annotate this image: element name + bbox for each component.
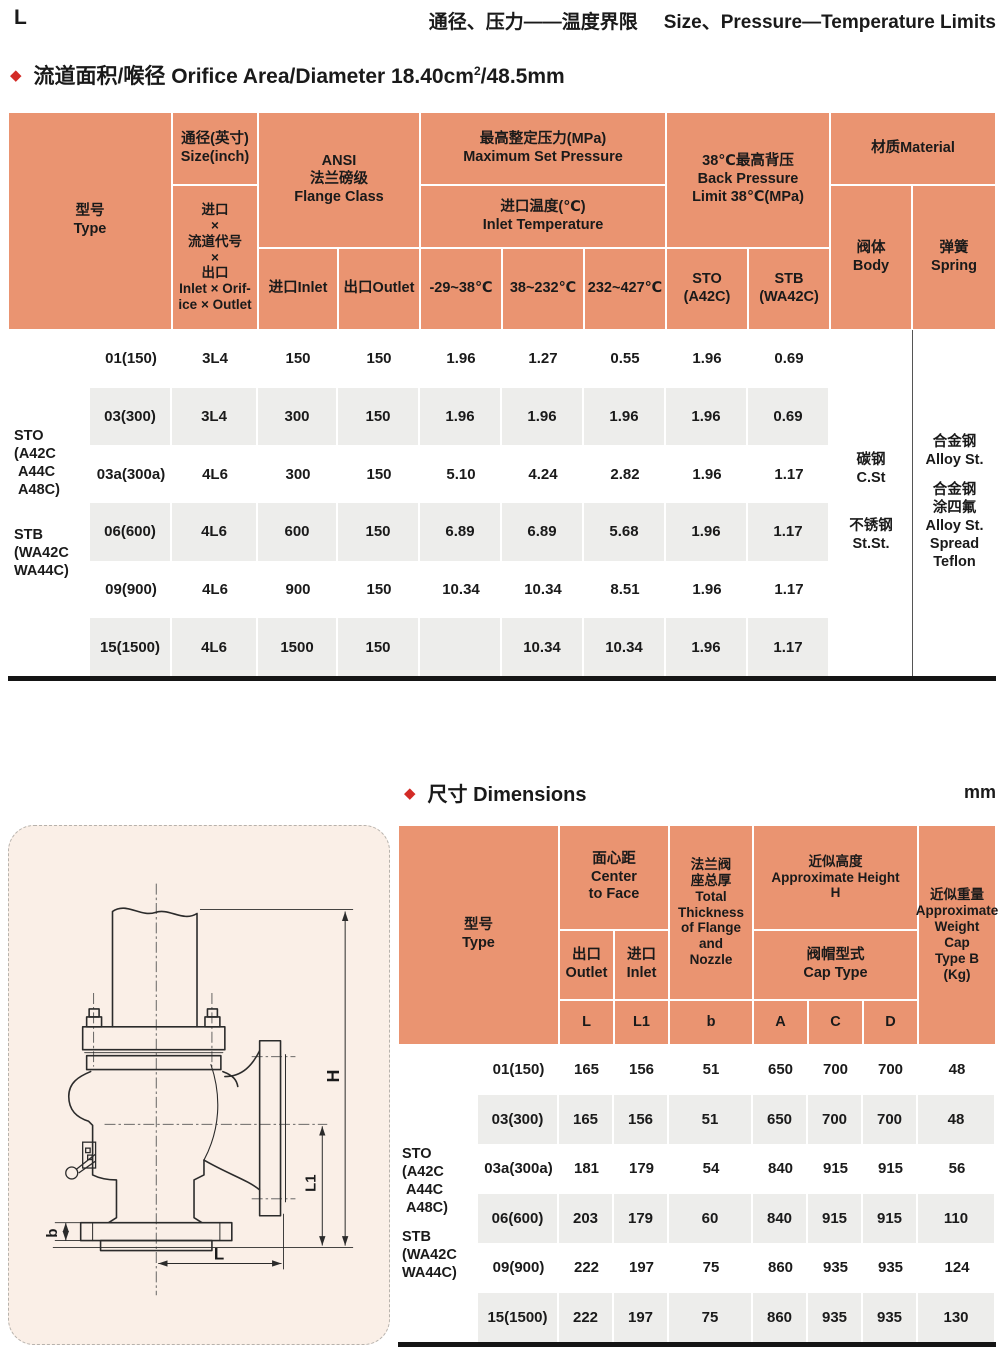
pt-cell: 150: [338, 618, 420, 676]
dim-cell: 935: [863, 1293, 918, 1343]
dim-cell: 700: [863, 1095, 918, 1145]
pt-cell: 150: [338, 561, 420, 619]
dim-cell: 75: [669, 1243, 753, 1293]
pt-table-body: STO (A42C A44C A48C) STB (WA42C WA44C) 碳…: [8, 330, 996, 676]
page-corner-letter: L: [14, 6, 27, 30]
dim-cell: 840: [753, 1144, 808, 1194]
dim-table-bottom-rule: [398, 1342, 996, 1347]
dimension-lines: [53, 910, 353, 1270]
dim-cell: 181: [559, 1144, 614, 1194]
dim-header-approx-height: 近似高度 Approximate Height H: [753, 825, 918, 930]
dim-cell: 156: [614, 1095, 669, 1145]
dim-cell: 860: [753, 1293, 808, 1343]
dim-label-b: b: [45, 1229, 61, 1238]
pt-table-bottom-rule: [8, 676, 996, 681]
dim-cell: 51: [669, 1045, 753, 1095]
dim-header-cap-type: 阀帽型式 Cap Type: [753, 930, 918, 1000]
dim-cell: 51: [669, 1095, 753, 1145]
dim-cell: 197: [614, 1293, 669, 1343]
pt-header-size: 通径(英寸) Size(inch): [172, 112, 258, 185]
pt-header-temp2: 38~232℃: [502, 248, 584, 330]
pt-cell: 03a(300a): [90, 445, 172, 503]
pt-material-stainless: 不锈钢 St.St.: [849, 518, 893, 554]
pt-cell: 1.96: [502, 388, 584, 446]
pt-cell: 0.69: [748, 388, 830, 446]
pt-cell: 4L6: [172, 561, 258, 619]
dims-title: ◆ 尺寸 Dimensions mm: [404, 778, 996, 807]
pt-cell: 0.69: [748, 330, 830, 388]
dim-cell: 915: [863, 1194, 918, 1244]
pt-header-stb: STB (WA42C): [748, 248, 830, 330]
dim-cell: 48: [918, 1045, 996, 1095]
pt-cell: 3L4: [172, 330, 258, 388]
diamond-bullet-icon: ◆: [10, 66, 22, 84]
dim-cell: 130: [918, 1293, 996, 1343]
lever-assembly: [66, 1142, 96, 1179]
pt-table-header: 型号 Type 通径(英寸) Size(inch) 进口 × 流道代号 × 出口…: [8, 112, 996, 330]
dim-letter-A: A: [753, 1000, 808, 1045]
dim-header-center-to-face: 面心距 Center to Face: [559, 825, 669, 930]
dim-cell: 915: [808, 1194, 863, 1244]
dim-cell: 203: [559, 1194, 614, 1244]
pt-cell: 150: [338, 445, 420, 503]
pt-cell: 1.96: [666, 388, 748, 446]
pt-cell: 1.96: [420, 330, 502, 388]
dimension-labels: H L1 b L: [45, 1070, 343, 1264]
dim-cell: 124: [918, 1243, 996, 1293]
dim-letter-L1: L1: [614, 1000, 669, 1045]
dim-cell: 700: [808, 1095, 863, 1145]
dim-header-type: 型号 Type: [398, 825, 559, 1045]
dim-cell: 60: [669, 1194, 753, 1244]
pt-header-inlet-temperature: 进口温度(℃) Inlet Temperature: [420, 185, 666, 248]
pt-cell: 1.17: [748, 561, 830, 619]
page-title-en: Size、Pressure—Temperature Limits: [664, 12, 996, 33]
dim-cell: 01(150): [478, 1045, 559, 1095]
pt-header-inlet-orifice-outlet: 进口 × 流道代号 × 出口 Inlet × Orif- ice × Outle…: [172, 185, 258, 330]
orifice-text: 流道面积/喉径 Orifice Area/Diameter 18.40cm2/4…: [34, 60, 565, 90]
pt-cell: 03(300): [90, 388, 172, 446]
dim-letter-L: L: [559, 1000, 614, 1045]
pt-cell: 4L6: [172, 445, 258, 503]
pt-cell: 1.17: [748, 503, 830, 561]
dim-cell: 179: [614, 1194, 669, 1244]
catalog-page: L 通径、压力——温度界限Size、Pressure—Temperature L…: [0, 0, 1000, 1357]
pt-cell: 0.55: [584, 330, 666, 388]
pt-cell: 1.17: [748, 618, 830, 676]
pt-header-inlet: 进口Inlet: [258, 248, 338, 330]
dim-cell: 860: [753, 1243, 808, 1293]
dim-cell: 700: [863, 1045, 918, 1095]
pt-material-carbon: 碳钢 C.St: [857, 452, 886, 488]
pt-cell: 150: [258, 330, 338, 388]
pt-cell: 6.89: [502, 503, 584, 561]
dim-header-thickness: 法兰阀 座总厚 Total Thickness of Flange and No…: [669, 825, 753, 1000]
pt-cell: 06(600): [90, 503, 172, 561]
pt-group-sto: STO (A42C A44C A48C): [14, 427, 90, 500]
dim-cell: 915: [808, 1144, 863, 1194]
dim-group-sto: STO (A42C A44C A48C): [402, 1145, 478, 1218]
dim-label-L: L: [214, 1244, 224, 1263]
pt-cell: 10.34: [420, 561, 502, 619]
pt-group-labels: STO (A42C A44C A48C) STB (WA42C WA44C): [8, 330, 90, 676]
dims-unit: mm: [964, 782, 996, 803]
dim-table-header: 型号 Type 面心距 Center to Face 出口 Outlet 进口 …: [398, 825, 996, 1045]
pt-cell: 3L4: [172, 388, 258, 446]
dim-table-body: STO (A42C A44C A48C) STB (WA42C WA44C) 0…: [398, 1045, 996, 1342]
pt-header-ansi: ANSI 法兰磅级 Flange Class: [258, 112, 420, 248]
dim-label-H: H: [323, 1070, 343, 1083]
pt-cell: 1.17: [748, 445, 830, 503]
pt-header-outlet: 出口Outlet: [338, 248, 420, 330]
dim-cell: 650: [753, 1045, 808, 1095]
pt-cell: 6.89: [420, 503, 502, 561]
pt-cell: 15(1500): [90, 618, 172, 676]
pt-cell: 150: [338, 330, 420, 388]
dim-group-labels: STO (A42C A44C A48C) STB (WA42C WA44C): [398, 1045, 478, 1342]
pt-cell: 10.34: [502, 561, 584, 619]
dim-cell: 179: [614, 1144, 669, 1194]
dims-title-text: 尺寸 Dimensions: [428, 778, 587, 807]
pt-cell: 1.96: [666, 445, 748, 503]
pt-spring-alloy: 合金钢 Alloy St.: [925, 434, 983, 470]
dim-cell: 03a(300a): [478, 1144, 559, 1194]
pt-cell: 1.96: [420, 388, 502, 446]
dim-cell: 700: [808, 1045, 863, 1095]
dim-label-L1: L1: [303, 1174, 319, 1191]
valve-drawing: H L1 b L: [9, 826, 389, 1343]
dim-cell: 935: [808, 1243, 863, 1293]
pt-cell: 5.68: [584, 503, 666, 561]
dim-cell: 222: [559, 1293, 614, 1343]
pt-cell: 150: [338, 503, 420, 561]
pt-cell: 1.96: [666, 330, 748, 388]
pt-cell: 4.24: [502, 445, 584, 503]
pt-spring-material: 合金钢 Alloy St. 合金钢 涂四氟 Alloy St. Spread T…: [912, 330, 996, 676]
page-title: 通径、压力——温度界限Size、Pressure—Temperature Lim…: [429, 7, 996, 34]
orifice-superscript: 2: [474, 64, 481, 78]
pt-cell: 5.10: [420, 445, 502, 503]
pt-cell: 01(150): [90, 330, 172, 388]
dim-letter-b: b: [669, 1000, 753, 1045]
dim-cell: 840: [753, 1194, 808, 1244]
pt-cell: 8.51: [584, 561, 666, 619]
dim-cell: 75: [669, 1293, 753, 1343]
pt-header-back-pressure: 38℃最高背压 Back Pressure Limit 38℃(MPa): [666, 112, 830, 248]
pt-header-temp3: 232~427℃: [584, 248, 666, 330]
orifice-line: ◆ 流道面积/喉径 Orifice Area/Diameter 18.40cm2…: [10, 60, 565, 90]
pt-group-stb: STB (WA42C WA44C): [14, 526, 90, 580]
dim-header-inlet: 进口 Inlet: [614, 930, 669, 1000]
pt-cell: [420, 618, 502, 676]
dim-cell: 650: [753, 1095, 808, 1145]
dim-header-outlet: 出口 Outlet: [559, 930, 614, 1000]
pt-cell: 300: [258, 445, 338, 503]
dim-cell: 09(900): [478, 1243, 559, 1293]
pt-cell: 1.27: [502, 330, 584, 388]
pt-cell: 2.82: [584, 445, 666, 503]
dim-cell: 935: [808, 1293, 863, 1343]
pt-cell: 4L6: [172, 503, 258, 561]
pt-cell: 1.96: [666, 561, 748, 619]
dim-header-weight: 近似重量 Approximate Weight Cap Type B (Kg): [918, 825, 996, 1045]
pt-header-spring: 弹簧 Spring: [912, 185, 996, 330]
valve-drawing-panel: H L1 b L: [8, 825, 390, 1345]
pt-body-material: 碳钢 C.St 不锈钢 St.St.: [830, 330, 912, 676]
pt-header-body: 阀体 Body: [830, 185, 912, 330]
pt-cell: 900: [258, 561, 338, 619]
pt-cell: 1.96: [666, 618, 748, 676]
dim-letter-C: C: [808, 1000, 863, 1045]
dim-cell: 110: [918, 1194, 996, 1244]
pt-header-temp1: -29~38℃: [420, 248, 502, 330]
pt-cell: 1.96: [584, 388, 666, 446]
dim-cell: 15(1500): [478, 1293, 559, 1343]
diamond-bullet-icon: ◆: [404, 784, 416, 802]
pt-header-material: 材质Material: [830, 112, 996, 185]
dim-cell: 935: [863, 1243, 918, 1293]
dim-cell: 197: [614, 1243, 669, 1293]
dim-letter-D: D: [863, 1000, 918, 1045]
dim-cell: 03(300): [478, 1095, 559, 1145]
pt-cell: 09(900): [90, 561, 172, 619]
pt-cell: 10.34: [584, 618, 666, 676]
dim-cell: 222: [559, 1243, 614, 1293]
dim-cell: 165: [559, 1045, 614, 1095]
pt-cell: 150: [338, 388, 420, 446]
centerlines: [94, 884, 328, 1296]
pt-cell: 1500: [258, 618, 338, 676]
dim-group-stb: STB (WA42C WA44C): [402, 1228, 478, 1282]
pt-header-type: 型号 Type: [8, 112, 172, 330]
page-title-zh: 通径、压力——温度界限: [429, 12, 638, 33]
pt-cell: 600: [258, 503, 338, 561]
pt-cell: 10.34: [502, 618, 584, 676]
pt-header-max-set-pressure: 最高整定压力(MPa) Maximum Set Pressure: [420, 112, 666, 185]
pt-cell: 1.96: [666, 503, 748, 561]
dim-cell: 915: [863, 1144, 918, 1194]
dim-cell: 56: [918, 1144, 996, 1194]
dim-cell: 165: [559, 1095, 614, 1145]
pt-cell: 300: [258, 388, 338, 446]
dim-cell: 54: [669, 1144, 753, 1194]
pt-spring-teflon: 合金钢 涂四氟 Alloy St. Spread Teflon: [925, 482, 983, 572]
dim-cell: 156: [614, 1045, 669, 1095]
pt-header-sto: STO (A42C): [666, 248, 748, 330]
pt-cell: 4L6: [172, 618, 258, 676]
dim-cell: 48: [918, 1095, 996, 1145]
dim-cell: 06(600): [478, 1194, 559, 1244]
